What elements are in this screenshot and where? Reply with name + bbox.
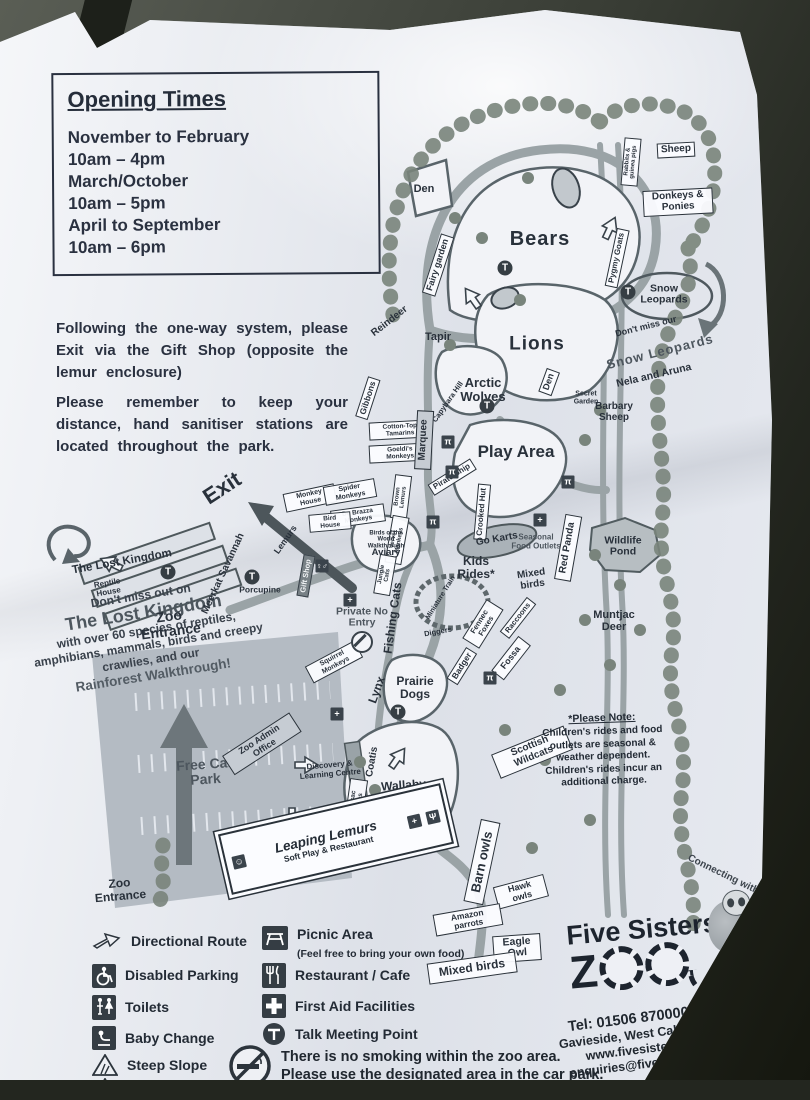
toilets-icon [92,994,116,1020]
map-label-pygmy-goats: Pygmy Goats [605,228,630,288]
legend-first-aid: First Aid Facilities [262,994,415,1018]
map-label-exit: Exit [199,467,246,509]
map-label-bird-house: Bird House [308,511,351,533]
first-aid-icon: + [331,708,344,721]
map-label-play-area: Play Area [477,443,555,461]
talk-point-icon: T [480,399,495,414]
map-label-spider-monkeys: Spider Monkeys [323,478,378,506]
opening-times-line: April to September [68,213,364,237]
legend-disabled-parking: Disabled Parking [92,962,239,988]
legend-toilets: Toilets [92,994,169,1020]
map-label-gibbons: Gibbons [355,376,381,420]
map-label-rabbits-guinea-pigs: Rabbits & guinea pigs [620,137,641,186]
talk-point-icon: T [391,705,406,720]
map-label-badger: Badger [447,647,478,686]
map-label-den-lions: Den [538,368,559,396]
opening-times-box: Opening Times November to February 10am … [51,71,380,276]
photo-background: Opening Times November to February 10am … [0,0,810,1080]
legend-directional-route: Directional Route [92,932,247,950]
enclosure-closed-icon [92,1078,118,1100]
map-label-prairie-dogs: Prairie Dogs [385,675,445,701]
talk-point-icon: T [245,570,260,585]
map-label-muntjac-deer: Muntjac Deer [585,610,643,634]
map-label-raccoons: Raccoons [500,597,537,639]
contact-block: Tel: 01506 870000 / 871111 Gavieside, We… [527,992,792,1084]
picnic-icon: π [562,476,575,489]
map-label-dont-miss-our: Don't miss our [614,315,677,340]
steep-slope-icon [92,1054,118,1076]
first-aid-icon: + [534,514,547,527]
map-label-fossa: Fossa [491,636,530,680]
please-note: *Please Note: Children's rides and food … [539,710,668,791]
map-label-seasonal-food-outlets: Seasonal Food Outlets [508,533,564,550]
opening-times-line: 10am – 5pm [68,191,364,215]
map-label-miniature-train: Miniature Train [425,575,458,621]
talk-point-icon [262,1022,286,1046]
map-label-fennec-foxes: Fennec Foxes [462,599,503,649]
map-label-brown-lemurs: Brown Lemurs [390,474,412,520]
lemur-tail-icon [688,965,746,997]
picnic-icon: π [446,466,459,479]
toilets-icon: ♀♂ [316,560,329,573]
legend-talk-point: Talk Meeting Point [262,1022,418,1046]
restaurant-icon [262,962,286,988]
one-way-notice: Following the one-way system, please Exi… [56,318,348,383]
baby-change-icon [92,1026,116,1050]
map-label-private-no-entry: Private No Entry [328,607,396,630]
opening-times-line: 10am – 4pm [68,147,364,171]
restaurant-mini-icon: Ψ [425,809,441,825]
picnic-icon: π [442,436,455,449]
opening-times-line: November to February [68,125,364,149]
legend-baby-change: Baby Change [92,1026,214,1050]
please-note-body: Children's rides and food outlets are se… [539,724,667,791]
map-label-diggers: Diggers [424,626,453,639]
map-label-secret-garden: Secret Garden [563,390,609,405]
map-label-coatis: Coatis [365,746,381,778]
opening-times-line: March/October [68,169,364,193]
map-label-reindeer: Reindeer [370,305,410,340]
map-label-porcupine: Porcupine [239,585,281,594]
logo-since: Since 2005 [686,982,734,1021]
soft-play-icon: ☺ [231,854,247,870]
map-label-crooked-hut: Crooked Hut [473,484,490,541]
picnic-icon: π [427,516,440,529]
first-aid-icon [262,994,286,1018]
map-label-zoo-entrance-bottom: Zoo Entrance [86,874,154,906]
legend-restaurant: Restaurant / Cafe [262,962,410,988]
map-label-fairy-garden: Fairy garden [422,233,454,296]
no-smoking-icon [228,1044,272,1088]
disabled-parking-icon [92,962,116,988]
map-label-mixed-birds-mid: Mixed birds [508,566,557,594]
map-label-lemurs: Lemurs [273,524,300,556]
map-label-gift-shop: Gift Shop [296,554,315,597]
map-label-tapir: Tapir [425,332,451,344]
picnic-icon: π [484,672,497,685]
map-label-snow-leopards-oval: Snow Leopards [631,284,697,307]
talk-point-icon: T [498,261,513,276]
talk-point-icon: T [161,565,176,580]
talk-point-icon: T [621,285,636,300]
directional-route-icon [92,932,122,950]
distance-notice: Please remember to keep your distance, h… [56,392,348,457]
first-aid-icon: + [344,594,357,607]
map-label-marquee: Marquee [414,410,434,470]
first-aid-mini-icon: + [407,813,423,829]
picnic-area-icon [262,926,288,950]
opening-times-title: Opening Times [67,85,363,113]
legend-picnic-area: Picnic Area (Feel free to bring your own… [262,926,464,962]
leaping-lemurs-box: ☺ Leaping Lemurs Soft Play & Restaurant … [218,783,454,895]
legend-steep-slope: Steep Slope [92,1054,207,1076]
map-label-zoo-admin-office: Zoo Admin Office [222,712,302,775]
map-label-wildlife-pond: Wildlife Pond [594,536,652,559]
map-label-sheep: Sheep [657,142,696,159]
legend-enclosure-closed: Enclosure currently [92,1078,259,1100]
five-sisters-zoo-logo: Connecting with Wildlife Five Sisters Z … [565,903,771,995]
no-entry-icon [351,631,373,653]
map-label-den-top: Den [414,184,435,196]
map-label-the-lost-kingdom: The Lost Kingdom [71,547,173,577]
map-label-lions: Lions [509,335,565,356]
zoo-ring-o [644,940,692,988]
map-label-donkeys-ponies: Donkeys & Ponies [642,187,713,216]
zoo-ring-o [598,944,646,992]
opening-times-line: 10am – 6pm [68,235,364,259]
map-label-bears: Bears [510,229,571,251]
zoo-map-leaflet: Opening Times November to February 10am … [0,0,810,1080]
map-label-hawk-owls: Hawk owls [493,874,549,910]
map-label-aviary: Aviary [372,548,401,558]
